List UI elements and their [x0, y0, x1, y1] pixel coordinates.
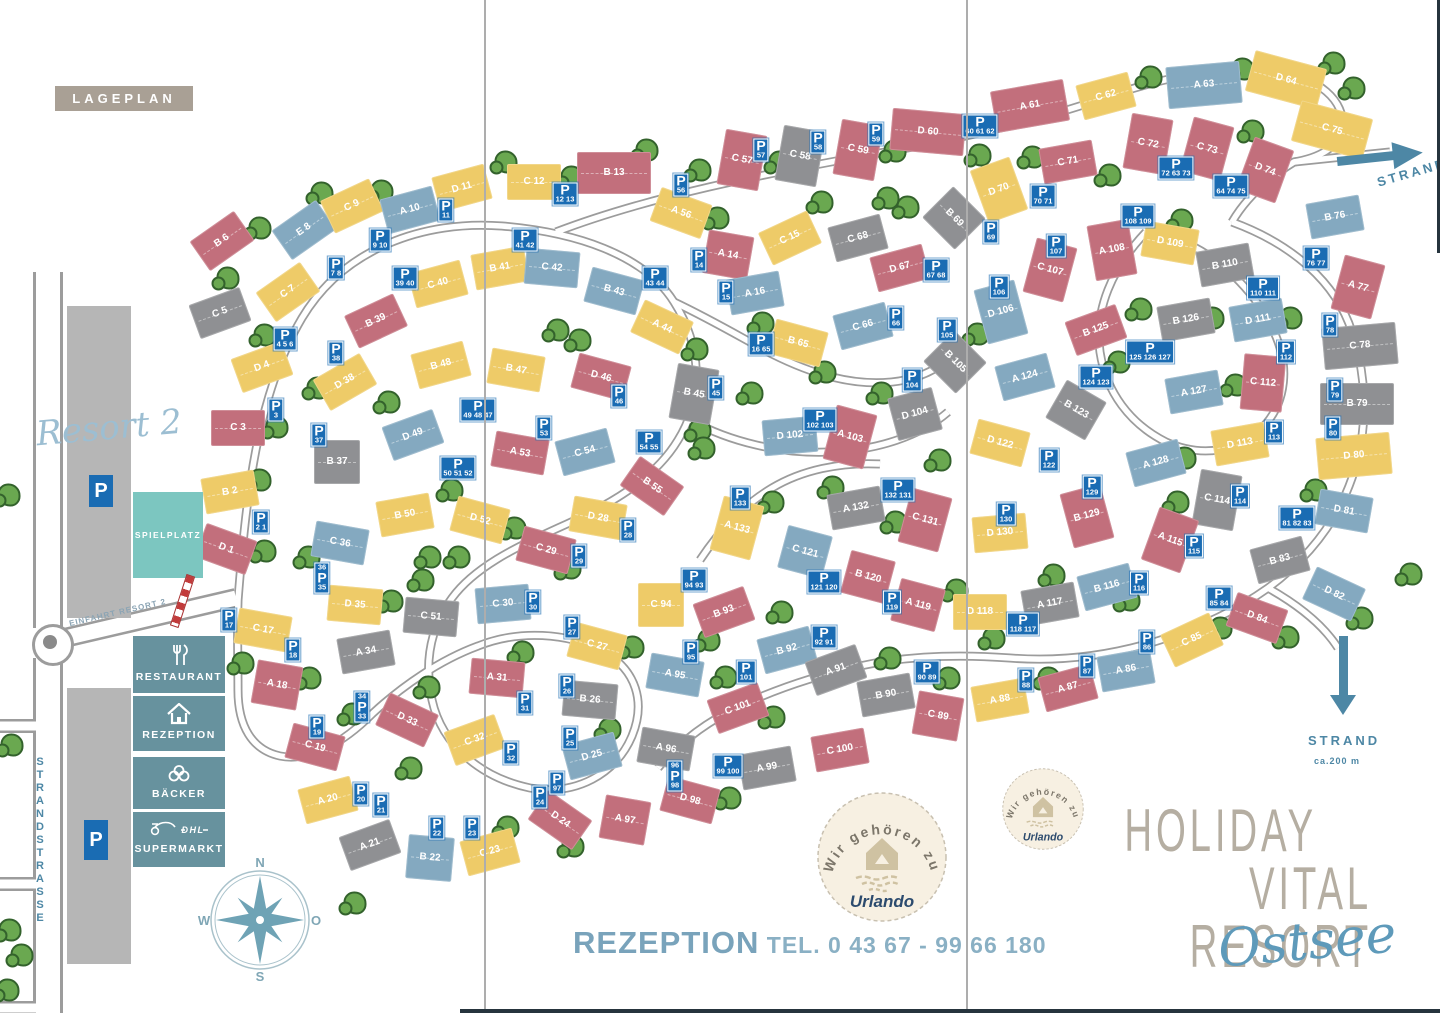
tree — [1099, 164, 1122, 187]
compass-rose: N O S W — [196, 856, 324, 984]
parking-sign-57: P57 — [753, 139, 768, 162]
parking-sign-64-74-75: P64 74 75 — [1213, 175, 1248, 198]
parking-sign-92-91: P92 91 — [812, 626, 837, 649]
parking-sign-69: P69 — [983, 221, 998, 244]
parking-sign-67-68: P67 68 — [924, 259, 949, 282]
strand-distance: ca.200 m — [1314, 756, 1360, 766]
parking-sign-2-1: P2 1 — [253, 511, 269, 534]
tree — [1, 734, 24, 757]
parking-sign-87: P87 — [1079, 655, 1094, 678]
playground-area: SPIELPLATZ — [133, 492, 203, 578]
pretzel-icon — [166, 764, 192, 784]
strand-label-south: STRAND — [1308, 733, 1380, 748]
supermarkt-label: SUPERMARKT — [134, 843, 223, 855]
parking-sign-24: P24 — [532, 786, 547, 809]
parking-sign-29: P29 — [571, 545, 586, 568]
parking-sign-97: P97 — [549, 772, 564, 795]
parking-sign-7-8: P7 8 — [328, 257, 344, 280]
building-c-94: C 94 — [638, 583, 684, 627]
parking-sign-119: P119 — [883, 591, 901, 614]
parking-sign-31: P31 — [517, 692, 532, 715]
parking-sign-53: P53 — [536, 417, 551, 440]
tree — [412, 569, 435, 592]
page-title: LAGEPLAN — [55, 86, 193, 111]
parking-sign-11: P11 — [438, 199, 453, 222]
tree — [0, 919, 22, 942]
parking-sign-46: P46 — [611, 385, 626, 408]
tree — [1400, 563, 1423, 586]
fold-line-right — [966, 0, 968, 1013]
parking-sign-107: P107 — [1047, 235, 1066, 258]
parking-sign-4-5-6: P4 5 6 — [274, 328, 297, 351]
tree — [512, 641, 535, 664]
building-d-35: D 35 — [327, 585, 384, 626]
parking-sign-114: P114 — [1231, 485, 1249, 508]
facility-rezeption: REZEPTION — [133, 696, 225, 751]
tree — [1140, 66, 1163, 89]
parking-sign-125-126-127: P125 126 127 — [1126, 341, 1174, 364]
parking-sign-95: P95 — [683, 641, 698, 664]
parking-sign-122: P122 — [1040, 449, 1059, 472]
compass-n: N — [255, 856, 264, 870]
parking-sign-70-71: P70 71 — [1031, 185, 1056, 208]
tree — [547, 319, 570, 342]
parking-sign-56: P56 — [673, 174, 688, 197]
parking-sign-102-103: P102 103 — [803, 409, 836, 432]
parking-sign-43-44: P43 44 — [643, 267, 668, 290]
parking-sign-101: P101 — [737, 661, 756, 684]
facility-restaurant: RESTAURANT — [133, 636, 225, 693]
tree — [1343, 77, 1366, 100]
tree — [400, 757, 423, 780]
parking-sign-35: 36P35 — [314, 563, 329, 594]
tree — [762, 491, 785, 514]
tree — [419, 546, 442, 569]
tree — [741, 382, 764, 405]
parking-sign-85-84: P85 84 — [1207, 587, 1232, 610]
parking-sign-59: P59 — [868, 123, 883, 146]
tree — [0, 979, 20, 1002]
tree — [418, 676, 441, 699]
tree — [689, 159, 712, 182]
parking-sign-113: P113 — [1265, 421, 1283, 444]
parking-sign-132-131: P132 131 — [881, 479, 914, 502]
urlando-badge-large: Wir gehören zu Urlando — [812, 787, 952, 927]
house-icon — [167, 703, 191, 725]
building-c-89: C 89 — [912, 690, 965, 741]
parking-sign-78: P78 — [1322, 314, 1337, 337]
strand-arrow-south-icon — [1339, 636, 1348, 696]
parking-sign-27: P27 — [564, 616, 579, 639]
reception-phone: REZEPTION TEL. 0 43 67 - 99 66 180 — [573, 925, 1047, 961]
tree — [217, 267, 240, 290]
tree — [938, 667, 961, 690]
parking-sign-112: P112 — [1277, 341, 1295, 364]
building-d-118: D 118 — [953, 594, 1007, 630]
tree — [448, 546, 471, 569]
parking-sign-26: P26 — [559, 675, 574, 698]
parking-sign-39-40: P39 40 — [393, 267, 418, 290]
parking-sign-12-13: P12 13 — [553, 183, 578, 206]
building-a-63: A 63 — [1165, 61, 1242, 109]
compass-w: W — [198, 913, 211, 928]
compass-s: S — [256, 969, 265, 984]
parking-sign-30: P30 — [525, 591, 540, 614]
restaurant-label: RESTAURANT — [136, 671, 223, 683]
tree — [686, 338, 709, 361]
tree — [771, 601, 794, 624]
parking-sign-88: P88 — [1018, 669, 1033, 692]
tree — [1130, 298, 1153, 321]
building-a-97: A 97 — [599, 794, 652, 845]
parking-sign-16-65: P16 65 — [749, 333, 774, 356]
playground-label: SPIELPLATZ — [135, 530, 201, 540]
parking-sign-41-42: P41 42 — [513, 229, 538, 252]
building-b-13: B 13 — [577, 152, 651, 194]
brand-line1: HOLIDAY — [1124, 802, 1310, 860]
parking-sign-121-120: P121 120 — [807, 571, 840, 594]
parking-sign-94-93: P94 93 — [682, 569, 707, 592]
tree — [811, 191, 834, 214]
rezeption-label: REZEPTION — [142, 729, 216, 741]
baecker-label: BÄCKER — [152, 788, 206, 800]
parking-sign-18: P18 — [285, 639, 300, 662]
badge-name: Urlando — [850, 892, 914, 911]
fork-knife-icon — [167, 643, 191, 667]
tree — [0, 484, 21, 507]
tree — [381, 590, 404, 613]
parking-sign-38: P38 — [328, 342, 343, 365]
tree — [693, 437, 716, 460]
building-a-18: A 18 — [251, 659, 304, 710]
reception-phone-title: REZEPTION — [573, 925, 759, 960]
building-d-60: D 60 — [889, 108, 966, 156]
parking-sign-17: P17 — [221, 609, 236, 632]
building-c-42: C 42 — [524, 248, 581, 289]
parking-sign-86: P86 — [1139, 631, 1154, 654]
building-c-51: C 51 — [403, 597, 460, 638]
tree — [715, 666, 738, 689]
parking-sign-49-48-47: P49 48 47 — [460, 399, 495, 422]
parking-lot-north — [67, 306, 131, 618]
fold-line-left — [484, 0, 486, 1013]
parking-sign-22: P22 — [429, 817, 444, 840]
parking-sign-19: P19 — [309, 716, 324, 739]
parking-sign-104: P104 — [903, 369, 922, 392]
parking-sign-99-100: P99 100 — [714, 755, 743, 778]
tree — [929, 449, 952, 472]
parking-sign-37: P37 — [311, 424, 326, 447]
parking-sign-129: P129 — [1083, 476, 1102, 499]
parking-sign-124-123: P124 123 — [1079, 366, 1112, 389]
parking-sign-3: P3 — [268, 399, 283, 422]
parking-sign-81-82-83: P81 82 83 — [1279, 507, 1314, 530]
building-b-37: B 37 — [314, 440, 360, 484]
parking-sign-72-63-73: P72 63 73 — [1158, 157, 1193, 180]
parking-sign-110-111: P110 111 — [1247, 277, 1279, 300]
parking-sign-32: P32 — [503, 742, 518, 765]
building-a-14: A 14 — [702, 229, 755, 280]
building-c-3: C 3 — [211, 410, 265, 446]
parking-sign-33: 34P33 — [354, 692, 369, 723]
parking-sign-115: P115 — [1185, 535, 1203, 558]
parking-sign-14: P14 — [691, 249, 706, 272]
tree — [569, 329, 592, 352]
tree — [344, 892, 367, 915]
street-label-strandstrasse: STRANDSTRASSE — [34, 756, 46, 925]
parking-sign-133: P133 — [731, 487, 750, 510]
parking-sign-21: P21 — [373, 794, 388, 817]
parking-sign-9-10: P9 10 — [370, 229, 391, 252]
tree — [232, 652, 255, 675]
parking-sign-28: P28 — [620, 519, 635, 542]
post-dhl-icon: DHL — [147, 819, 211, 839]
tree — [897, 196, 920, 219]
tree — [879, 647, 902, 670]
parking-sign-large: P — [89, 475, 113, 507]
parking-sign-15: P15 — [718, 281, 733, 304]
parking-sign-98: 96P98 — [667, 761, 682, 792]
parking-sign-118-117: P118 117 — [1007, 613, 1039, 636]
parking-sign-108-109: P108 109 — [1121, 205, 1154, 228]
parking-sign-116: P116 — [1130, 572, 1148, 595]
parking-sign-54-55: P54 55 — [637, 431, 662, 454]
tree — [11, 944, 34, 967]
page-edge-bottom — [460, 1009, 1440, 1013]
parking-sign-20: P20 — [353, 783, 368, 806]
facility-baecker: BÄCKER — [133, 757, 225, 809]
parking-sign-25: P25 — [562, 727, 577, 750]
strand-arrow-south-head — [1330, 695, 1356, 715]
parking-sign-50-51-52: P50 51 52 — [440, 457, 475, 480]
resort-site-map: LAGEPLAN Resort 2 STRANDSTRASSE EINFAHRT… — [0, 0, 1440, 1013]
reception-phone-number: TEL. 0 43 67 - 99 66 180 — [759, 932, 1046, 958]
parking-sign-130: P130 — [997, 503, 1016, 526]
building-b-22: B 22 — [405, 834, 455, 882]
parking-sign-66: P66 — [888, 307, 903, 330]
parking-sign-90-89: P90 89 — [915, 661, 940, 684]
parking-sign-79: P79 — [1327, 379, 1342, 402]
parking-sign-23: P23 — [464, 817, 479, 840]
parking-sign-80: P80 — [1325, 417, 1340, 440]
roundabout — [32, 624, 74, 666]
parking-sign-45: P45 — [708, 377, 723, 400]
parking-sign-76-77: P76 77 — [1304, 247, 1329, 270]
compass-o: O — [311, 913, 321, 928]
parking-sign-58: P58 — [810, 131, 825, 154]
parking-sign-large: P — [84, 820, 108, 860]
tree — [719, 787, 742, 810]
parking-sign-106: P106 — [990, 276, 1009, 299]
parking-sign-105: P105 — [938, 319, 957, 342]
tree — [378, 391, 401, 414]
